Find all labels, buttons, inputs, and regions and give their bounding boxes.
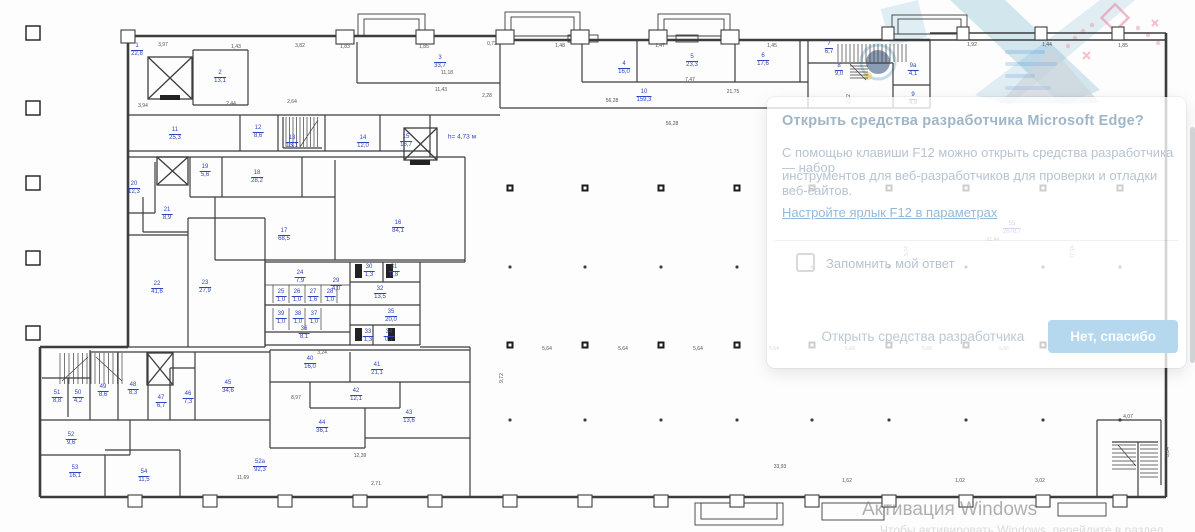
devtools-dialog: Открыть средства разработчика Microsoft … bbox=[767, 97, 1186, 368]
dialog-button-row: Открыть средства разработчика Нет, спаси… bbox=[811, 320, 1178, 353]
vertical-scrollbar[interactable] bbox=[1190, 127, 1195, 363]
devtools-settings-link[interactable]: Настройте ярлык F12 в параметрах bbox=[782, 205, 997, 220]
open-devtools-button[interactable]: Открыть средства разработчика bbox=[811, 320, 1034, 353]
windows-activation-watermark-line2: Чтобы активировать Windows, перейдите в … bbox=[880, 523, 1195, 532]
dialog-divider bbox=[775, 240, 1178, 241]
dialog-title: Открыть средства разработчика Microsoft … bbox=[782, 113, 1144, 129]
no-thanks-button[interactable]: Нет, спасибо bbox=[1048, 320, 1178, 353]
dialog-body-line2: инструментов для веб-разработчиков для п… bbox=[782, 168, 1186, 198]
remember-answer-label: Запомнить мой ответ bbox=[826, 256, 955, 271]
browser-viewport: 122,8213,1333,7416,0523,3617,676,789,09а… bbox=[0, 0, 1195, 532]
windows-activation-watermark: Активация Windows bbox=[862, 499, 1037, 521]
remember-answer-checkbox[interactable] bbox=[796, 253, 815, 272]
